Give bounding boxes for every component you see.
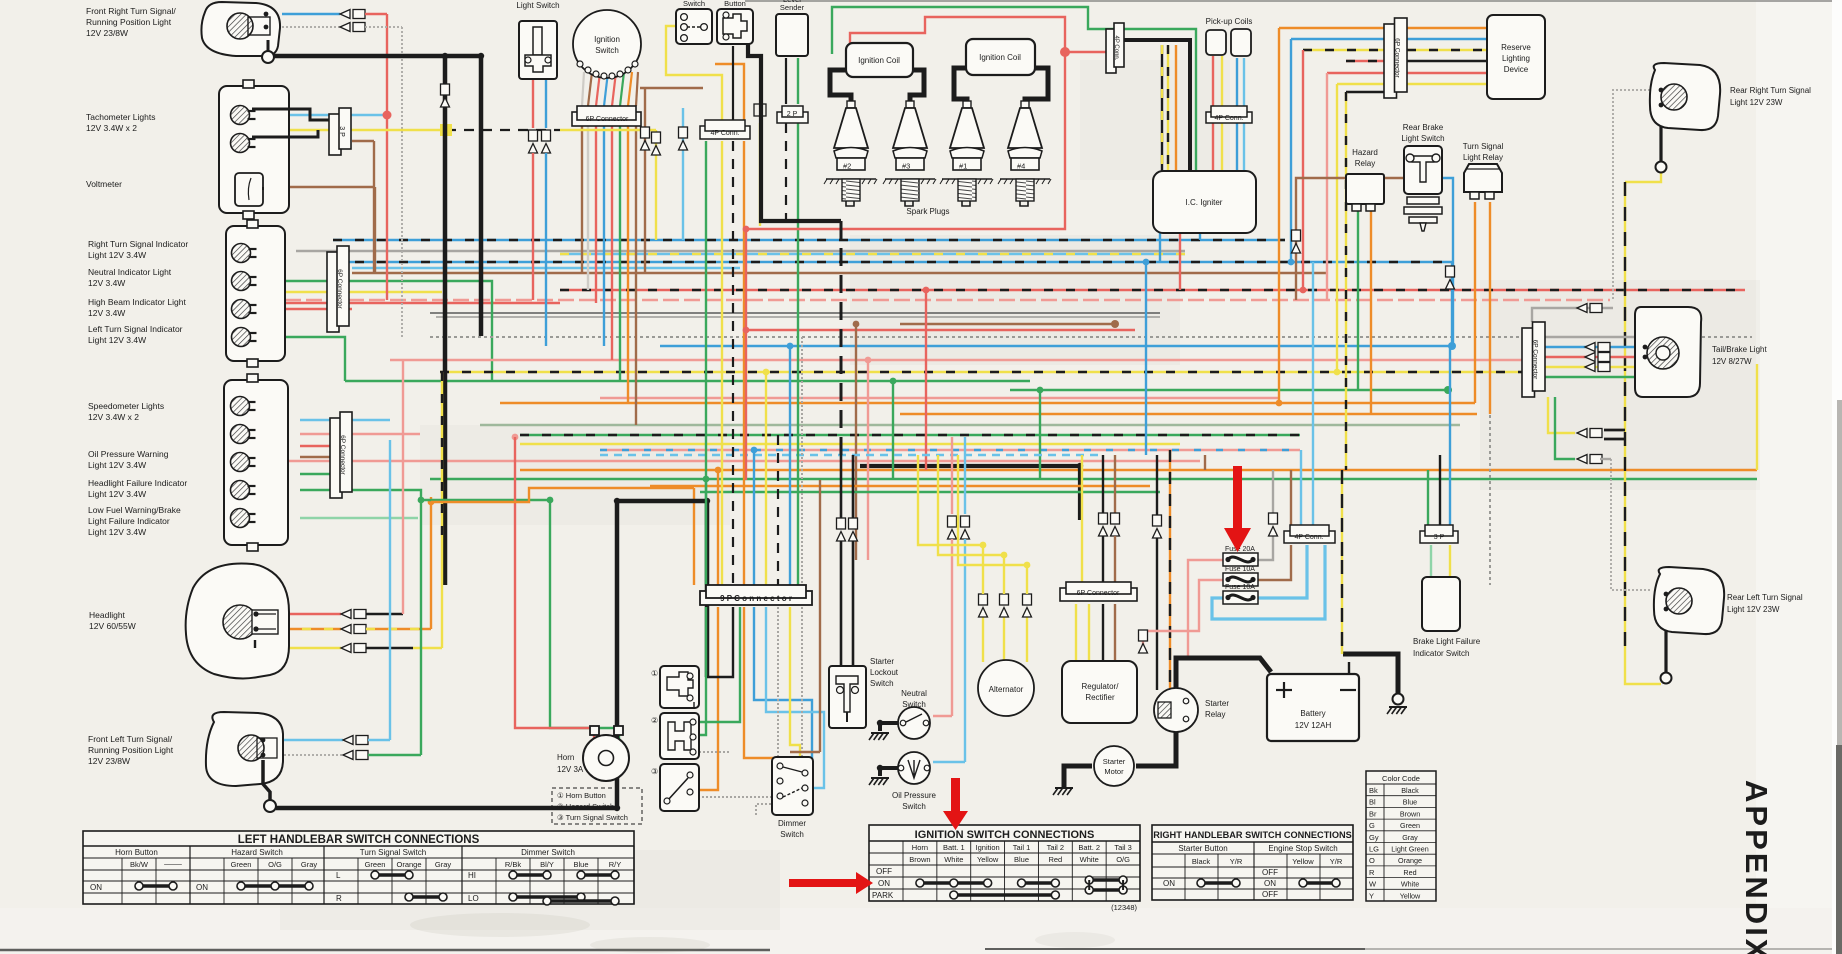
svg-text:Rectifier: Rectifier bbox=[1085, 693, 1115, 702]
svg-text:⸻: ⸻ bbox=[164, 860, 183, 869]
svg-text:Light 12V 3.4W: Light 12V 3.4W bbox=[88, 527, 146, 537]
svg-text:R/Y: R/Y bbox=[609, 860, 622, 869]
svg-text:Rear Left Turn Signal: Rear Left Turn Signal bbox=[1727, 593, 1803, 602]
svg-text:Green: Green bbox=[231, 860, 252, 869]
svg-text:W: W bbox=[1369, 880, 1377, 889]
svg-text:Battery: Battery bbox=[1300, 709, 1325, 718]
svg-text:Lockout: Lockout bbox=[870, 668, 899, 677]
svg-text:Dimmer: Dimmer bbox=[778, 819, 806, 828]
svg-text:Button: Button bbox=[724, 0, 746, 8]
svg-text:Starter: Starter bbox=[1205, 699, 1229, 708]
svg-text:Front Right Turn Signal/: Front Right Turn Signal/ bbox=[86, 6, 176, 16]
svg-text:Brown: Brown bbox=[1400, 809, 1420, 818]
svg-text:Blue: Blue bbox=[1403, 798, 1417, 807]
svg-text:R/Bk: R/Bk bbox=[505, 860, 522, 869]
svg-text:OFF: OFF bbox=[1262, 890, 1278, 899]
svg-text:Bl/Y: Bl/Y bbox=[540, 860, 554, 869]
svg-text:LEFT HANDLEBAR SWITCH CONNE: LEFT HANDLEBAR SWITCH CONNECTIONS bbox=[238, 834, 480, 846]
svg-text:Turn Signal: Turn Signal bbox=[1463, 142, 1504, 151]
svg-text:6P Connector: 6P Connector bbox=[339, 435, 346, 475]
svg-text:12V 3A: 12V 3A bbox=[557, 765, 584, 774]
svg-text:Ignition: Ignition bbox=[976, 843, 1000, 852]
svg-text:Left Turn Signal Indicator: Left Turn Signal Indicator bbox=[88, 324, 183, 334]
svg-text:6P Connector: 6P Connector bbox=[586, 116, 629, 123]
svg-text:Bl: Bl bbox=[1369, 798, 1376, 807]
svg-text:Green: Green bbox=[1400, 821, 1420, 830]
svg-text:4P Conn.: 4P Conn. bbox=[1294, 534, 1323, 541]
svg-text:Hazard Switch: Hazard Switch bbox=[231, 848, 283, 857]
svg-text:Oil Pressure: Oil Pressure bbox=[892, 791, 937, 800]
svg-text:Gray: Gray bbox=[301, 860, 318, 869]
svg-text:R: R bbox=[336, 894, 342, 903]
svg-text:Gray: Gray bbox=[1402, 833, 1418, 842]
svg-text:①: ① bbox=[651, 669, 658, 678]
svg-text:Oil Pressure Warning: Oil Pressure Warning bbox=[88, 449, 169, 459]
svg-text:Fuse 10A: Fuse 10A bbox=[1225, 566, 1255, 573]
svg-text:ON: ON bbox=[1163, 879, 1175, 888]
svg-text:Light 12V 23W: Light 12V 23W bbox=[1727, 605, 1780, 614]
svg-text:Brown: Brown bbox=[909, 855, 930, 864]
svg-text:Black: Black bbox=[1192, 857, 1211, 866]
svg-text:12V 8/27W: 12V 8/27W bbox=[1712, 357, 1752, 366]
svg-text:White: White bbox=[1080, 855, 1099, 864]
svg-text:6P Connector: 6P Connector bbox=[1532, 340, 1539, 380]
svg-text:③ Turn Signal Switch: ③ Turn Signal Switch bbox=[557, 813, 628, 822]
svg-text:LO: LO bbox=[468, 894, 479, 903]
svg-text:Black: Black bbox=[1401, 786, 1419, 795]
svg-text:Rear Brake: Rear Brake bbox=[1403, 123, 1444, 132]
svg-text:Y/R: Y/R bbox=[1330, 857, 1343, 866]
svg-text:#4: #4 bbox=[1017, 162, 1025, 171]
svg-text:4P Conn.: 4P Conn. bbox=[1113, 36, 1119, 61]
svg-text:White: White bbox=[1401, 880, 1419, 889]
svg-text:#3: #3 bbox=[902, 162, 910, 171]
svg-text:Blue: Blue bbox=[573, 860, 588, 869]
svg-text:2 P: 2 P bbox=[787, 111, 798, 118]
svg-text:Starter Button: Starter Button bbox=[1178, 844, 1227, 853]
svg-text:4P Conn.: 4P Conn. bbox=[710, 130, 739, 137]
svg-text:Running Position Light: Running Position Light bbox=[88, 745, 174, 755]
svg-text:O/G: O/G bbox=[268, 860, 282, 869]
svg-text:LG: LG bbox=[1369, 845, 1379, 854]
svg-text:ON: ON bbox=[90, 883, 102, 892]
svg-text:Color Code: Color Code bbox=[1382, 774, 1420, 783]
svg-text:Red: Red bbox=[1403, 868, 1416, 877]
svg-text:#2: #2 bbox=[843, 162, 851, 171]
svg-text:Tachometer Lights: Tachometer Lights bbox=[86, 112, 155, 122]
svg-text:12V 23/8W: 12V 23/8W bbox=[88, 756, 130, 766]
svg-text:12V 3.4W x 2: 12V 3.4W x 2 bbox=[88, 412, 139, 422]
svg-text:Neutral: Neutral bbox=[901, 689, 927, 698]
svg-text:O/G: O/G bbox=[1116, 855, 1130, 864]
svg-text:Right Turn Signal Indicator: Right Turn Signal Indicator bbox=[88, 239, 188, 249]
svg-text:Batt. 1: Batt. 1 bbox=[943, 843, 965, 852]
svg-text:Y: Y bbox=[1369, 891, 1374, 900]
svg-text:Sender: Sender bbox=[780, 3, 805, 12]
svg-text:Switch: Switch bbox=[595, 46, 619, 55]
svg-text:#1: #1 bbox=[959, 162, 967, 171]
svg-text:Pick-up Coils: Pick-up Coils bbox=[1206, 17, 1253, 26]
svg-text:Green: Green bbox=[365, 860, 386, 869]
svg-text:Lighting: Lighting bbox=[1502, 54, 1530, 63]
svg-text:Y/R: Y/R bbox=[1230, 857, 1243, 866]
svg-text:Light 12V 23W: Light 12V 23W bbox=[1730, 98, 1783, 107]
svg-text:Batt. 2: Batt. 2 bbox=[1078, 843, 1100, 852]
svg-text:Voltmeter: Voltmeter bbox=[86, 179, 122, 189]
svg-text:Ignition Coil: Ignition Coil bbox=[979, 53, 1021, 62]
svg-text:Tail 2: Tail 2 bbox=[1047, 843, 1065, 852]
svg-text:Red: Red bbox=[1048, 855, 1062, 864]
svg-text:Horn: Horn bbox=[557, 753, 574, 762]
svg-text:Alternator: Alternator bbox=[989, 685, 1024, 694]
svg-text:R: R bbox=[1369, 868, 1375, 877]
svg-text:② Hazard Switch: ② Hazard Switch bbox=[557, 802, 614, 811]
svg-text:IGNITION SWITCH CONNECTIONS: IGNITION SWITCH CONNECTIONS bbox=[915, 829, 1095, 841]
svg-text:Hazard: Hazard bbox=[1352, 148, 1378, 157]
svg-text:Yellow: Yellow bbox=[1292, 857, 1314, 866]
svg-text:ON: ON bbox=[196, 883, 208, 892]
svg-text:Horn Button: Horn Button bbox=[115, 848, 158, 857]
svg-text:Brake Light Failure: Brake Light Failure bbox=[1413, 637, 1481, 646]
svg-text:12V 3.4W: 12V 3.4W bbox=[88, 278, 125, 288]
svg-text:Indicator Switch: Indicator Switch bbox=[1413, 649, 1469, 658]
svg-text:Spark Plugs: Spark Plugs bbox=[906, 207, 949, 216]
svg-text:Headlight Failure Indicator: Headlight Failure Indicator bbox=[88, 478, 187, 488]
svg-text:Horn: Horn bbox=[912, 843, 928, 852]
svg-text:③: ③ bbox=[651, 767, 658, 776]
svg-text:Light Failure Indicator: Light Failure Indicator bbox=[88, 516, 170, 526]
svg-text:Light 12V 3.4W: Light 12V 3.4W bbox=[88, 250, 146, 260]
svg-text:3 P: 3 P bbox=[1434, 534, 1445, 541]
svg-text:(12348): (12348) bbox=[1111, 903, 1137, 912]
svg-text:12V 60/55W: 12V 60/55W bbox=[89, 621, 136, 631]
svg-text:Front Left Turn Signal/: Front Left Turn Signal/ bbox=[88, 734, 173, 744]
svg-text:6P Connector: 6P Connector bbox=[336, 269, 343, 309]
svg-text:Yellow: Yellow bbox=[977, 855, 999, 864]
svg-text:Light 12V 3.4W: Light 12V 3.4W bbox=[88, 460, 146, 470]
svg-text:Bk/W: Bk/W bbox=[130, 860, 149, 869]
svg-text:Light Green: Light Green bbox=[1391, 845, 1429, 854]
svg-text:Relay: Relay bbox=[1355, 159, 1375, 168]
svg-text:12V 3.4W: 12V 3.4W bbox=[88, 308, 125, 318]
svg-text:Br: Br bbox=[1369, 809, 1377, 818]
svg-text:Switch: Switch bbox=[780, 830, 804, 839]
svg-text:① Horn Button: ① Horn Button bbox=[557, 791, 606, 800]
svg-text:6P Connector: 6P Connector bbox=[1394, 38, 1401, 78]
svg-text:Light Switch: Light Switch bbox=[516, 1, 559, 10]
svg-text:I.C. Igniter: I.C. Igniter bbox=[1186, 198, 1223, 207]
svg-text:HI: HI bbox=[468, 871, 476, 880]
svg-text:Switch: Switch bbox=[902, 802, 926, 811]
svg-text:Switch: Switch bbox=[683, 0, 705, 8]
svg-text:Low Fuel Warning/Brake: Low Fuel Warning/Brake bbox=[88, 505, 181, 515]
svg-text:Light Relay: Light Relay bbox=[1463, 153, 1503, 162]
svg-text:Device: Device bbox=[1504, 65, 1529, 74]
svg-text:Starter: Starter bbox=[1103, 757, 1126, 766]
svg-text:Regulator/: Regulator/ bbox=[1082, 682, 1120, 691]
svg-text:O: O bbox=[1369, 856, 1375, 865]
svg-text:Tail 1: Tail 1 bbox=[1013, 843, 1031, 852]
svg-text:ON: ON bbox=[1264, 879, 1276, 888]
svg-text:Ignition: Ignition bbox=[594, 35, 620, 44]
svg-text:Fuse 10A: Fuse 10A bbox=[1225, 584, 1255, 591]
svg-text:Tail 3: Tail 3 bbox=[1114, 843, 1132, 852]
svg-text:Rear Right Turn Signal: Rear Right Turn Signal bbox=[1730, 86, 1811, 95]
svg-text:Level: Level bbox=[783, 0, 801, 4]
svg-text:6P Connector: 6P Connector bbox=[1077, 590, 1120, 597]
svg-text:OFF: OFF bbox=[1262, 868, 1278, 877]
svg-text:Blue: Blue bbox=[1014, 855, 1029, 864]
svg-text:Motor: Motor bbox=[1104, 767, 1124, 776]
svg-text:Headlight: Headlight bbox=[89, 610, 126, 620]
svg-text:High Beam Indicator Light: High Beam Indicator Light bbox=[88, 297, 186, 307]
svg-text:Dimmer Switch: Dimmer Switch bbox=[521, 848, 575, 857]
svg-text:12V 3.4W x 2: 12V 3.4W x 2 bbox=[86, 123, 137, 133]
svg-text:Turn Signal Switch: Turn Signal Switch bbox=[360, 848, 426, 857]
svg-text:White: White bbox=[944, 855, 963, 864]
svg-text:Tail/Brake Light: Tail/Brake Light bbox=[1712, 345, 1767, 354]
svg-text:Starter: Starter bbox=[870, 657, 894, 666]
svg-text:G: G bbox=[1369, 821, 1375, 830]
svg-text:L: L bbox=[336, 871, 341, 880]
svg-text:PARK: PARK bbox=[872, 891, 894, 900]
svg-text:Speedometer Lights: Speedometer Lights bbox=[88, 401, 164, 411]
svg-text:Light 12V 3.4W: Light 12V 3.4W bbox=[88, 335, 146, 345]
svg-text:Gy: Gy bbox=[1369, 833, 1379, 842]
svg-text:Orange: Orange bbox=[1398, 856, 1422, 865]
svg-text:12V 12AH: 12V 12AH bbox=[1295, 721, 1332, 730]
svg-text:3 P: 3 P bbox=[338, 126, 345, 137]
svg-text:Bk: Bk bbox=[1369, 786, 1378, 795]
svg-text:Yellow: Yellow bbox=[1400, 891, 1421, 900]
svg-text:APPENDIX 26: APPENDIX 26 bbox=[1739, 780, 1774, 954]
svg-text:Relay: Relay bbox=[1205, 710, 1225, 719]
svg-text:Neutral Indicator Light: Neutral Indicator Light bbox=[88, 267, 172, 277]
svg-text:②: ② bbox=[651, 716, 658, 725]
svg-text:Ignition Coil: Ignition Coil bbox=[858, 56, 900, 65]
svg-text:Light Switch: Light Switch bbox=[1401, 134, 1444, 143]
svg-text:Gray: Gray bbox=[435, 860, 452, 869]
svg-text:12V 23/8W: 12V 23/8W bbox=[86, 28, 128, 38]
svg-text:RIGHT HANDLEBAR SWITCH CONNECT: RIGHT HANDLEBAR SWITCH CONNECTIONS bbox=[1153, 830, 1352, 840]
svg-text:Running Position Light: Running Position Light bbox=[86, 17, 172, 27]
svg-text:Engine Stop Switch: Engine Stop Switch bbox=[1268, 844, 1337, 853]
svg-text:Reserve: Reserve bbox=[1501, 43, 1531, 52]
svg-text:ON: ON bbox=[878, 879, 890, 888]
svg-text:9 P C o n n e c t o r: 9 P C o n n e c t o r bbox=[720, 594, 792, 603]
svg-text:Switch: Switch bbox=[870, 679, 894, 688]
svg-text:4P Conn.: 4P Conn. bbox=[1214, 115, 1243, 122]
svg-text:Orange: Orange bbox=[396, 860, 421, 869]
svg-text:Light 12V 3.4W: Light 12V 3.4W bbox=[88, 489, 146, 499]
svg-text:OFF: OFF bbox=[876, 867, 892, 876]
